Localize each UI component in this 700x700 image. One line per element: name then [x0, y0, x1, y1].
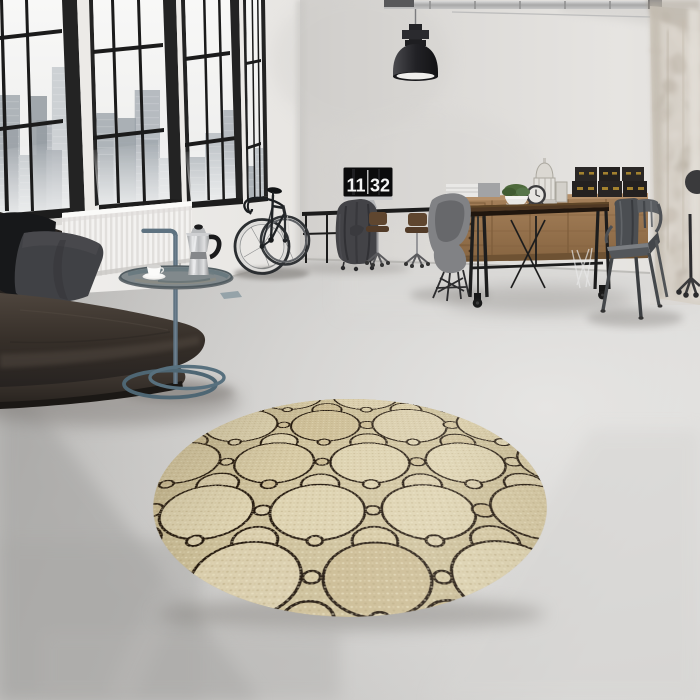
svg-text:11: 11: [346, 176, 365, 196]
svg-text:32: 32: [370, 176, 390, 196]
